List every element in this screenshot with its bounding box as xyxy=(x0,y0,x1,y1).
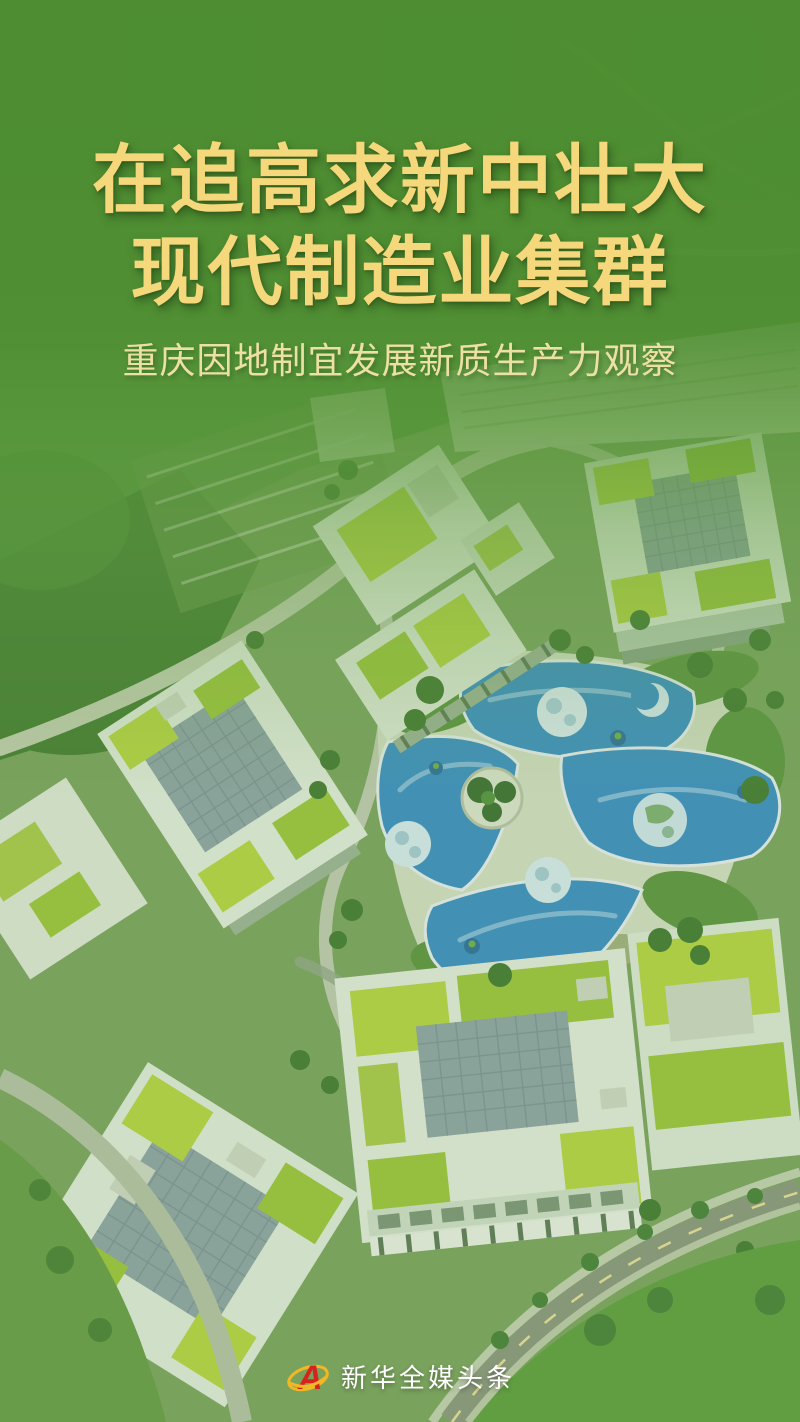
headline-line-2: 现代制造业集群 xyxy=(0,228,800,320)
xinhua-logo-icon: A xyxy=(285,1356,331,1396)
logo-letter: A xyxy=(297,1359,323,1396)
subtitle: 重庆因地制宜发展新质生产力观察 xyxy=(0,332,800,384)
headline-block: 在追高求新中壮大 现代制造业集群 xyxy=(0,136,800,320)
headline-line-1: 在追高求新中壮大 xyxy=(0,136,800,228)
footer-brand-label: 新华全媒头条 xyxy=(341,1358,515,1395)
news-poster: 在追高求新中壮大 现代制造业集群 重庆因地制宜发展新质生产力观察 A 新华全媒头… xyxy=(0,0,800,1422)
footer-brand: A 新华全媒头条 xyxy=(0,1356,800,1396)
